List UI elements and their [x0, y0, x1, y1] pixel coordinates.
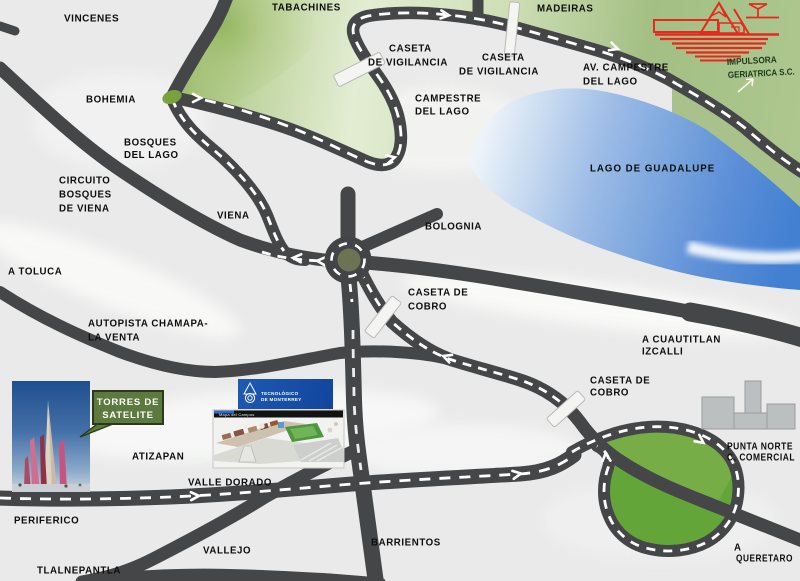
svg-text:MADEIRAS: MADEIRAS	[537, 4, 593, 15]
svg-text:DEL LAGO: DEL LAGO	[124, 150, 179, 161]
svg-text:BOLOGNIA: BOLOGNIA	[425, 222, 482, 233]
svg-text:COBRO: COBRO	[590, 388, 629, 399]
svg-text:IZCALLI: IZCALLI	[642, 347, 683, 358]
svg-text:TLALNEPANTLA: TLALNEPANTLA	[37, 566, 121, 577]
svg-text:DE MONTERREY: DE MONTERREY	[261, 397, 302, 402]
svg-text:DEL LAGO: DEL LAGO	[583, 77, 638, 88]
svg-text:SATELITE: SATELITE	[102, 410, 154, 421]
svg-text:VIENA: VIENA	[217, 211, 250, 222]
svg-text:CIRCUITO: CIRCUITO	[59, 176, 110, 187]
svg-text:BOSQUES: BOSQUES	[124, 138, 177, 149]
svg-text:BARRIENTOS: BARRIENTOS	[371, 538, 441, 549]
svg-text:A CUAUTITLAN: A CUAUTITLAN	[642, 335, 721, 346]
svg-text:PERIFERICO: PERIFERICO	[14, 516, 79, 527]
svg-text:COBRO: COBRO	[408, 302, 447, 313]
svg-text:TECNOLÓGICO: TECNOLÓGICO	[261, 389, 299, 396]
svg-text:C. COMERCIAL: C. COMERCIAL	[727, 453, 795, 464]
svg-text:DEL LAGO: DEL LAGO	[415, 107, 470, 118]
svg-text:DE VIENA: DE VIENA	[59, 204, 110, 215]
svg-text:A: A	[734, 543, 742, 554]
svg-text:Mapa del Campus: Mapa del Campus	[219, 412, 254, 417]
svg-text:CASETA: CASETA	[482, 53, 525, 64]
svg-text:VINCENES: VINCENES	[64, 14, 119, 25]
svg-text:CASETA DE: CASETA DE	[590, 376, 650, 387]
svg-text:PUNTA NORTE: PUNTA NORTE	[727, 442, 793, 453]
svg-text:VALLEJO: VALLEJO	[203, 546, 251, 557]
svg-text:BOSQUES: BOSQUES	[59, 190, 112, 201]
svg-text:ATIZAPAN: ATIZAPAN	[132, 452, 184, 463]
svg-text:VALLE DORADO: VALLE DORADO	[188, 478, 272, 489]
svg-text:LAGO DE GUADALUPE: LAGO DE GUADALUPE	[590, 164, 715, 175]
svg-text:DE VIGILANCIA: DE VIGILANCIA	[368, 58, 448, 69]
svg-text:QUERETARO: QUERETARO	[736, 554, 793, 565]
svg-text:AV. CAMPESTRE: AV. CAMPESTRE	[583, 63, 669, 74]
svg-text:CASETA DE: CASETA DE	[408, 288, 468, 299]
svg-text:TORRES DE: TORRES DE	[97, 397, 159, 408]
svg-text:A TOLUCA: A TOLUCA	[8, 267, 62, 278]
svg-text:BOHEMIA: BOHEMIA	[86, 95, 136, 106]
svg-text:TABACHINES: TABACHINES	[272, 3, 341, 14]
svg-text:DE VIGILANCIA: DE VIGILANCIA	[459, 67, 539, 78]
svg-text:LA VENTA: LA VENTA	[88, 333, 140, 344]
svg-text:CAMPESTRE: CAMPESTRE	[415, 94, 481, 105]
svg-text:CASETA: CASETA	[389, 44, 432, 55]
svg-text:AUTOPISTA CHAMAPA-: AUTOPISTA CHAMAPA-	[88, 319, 208, 330]
